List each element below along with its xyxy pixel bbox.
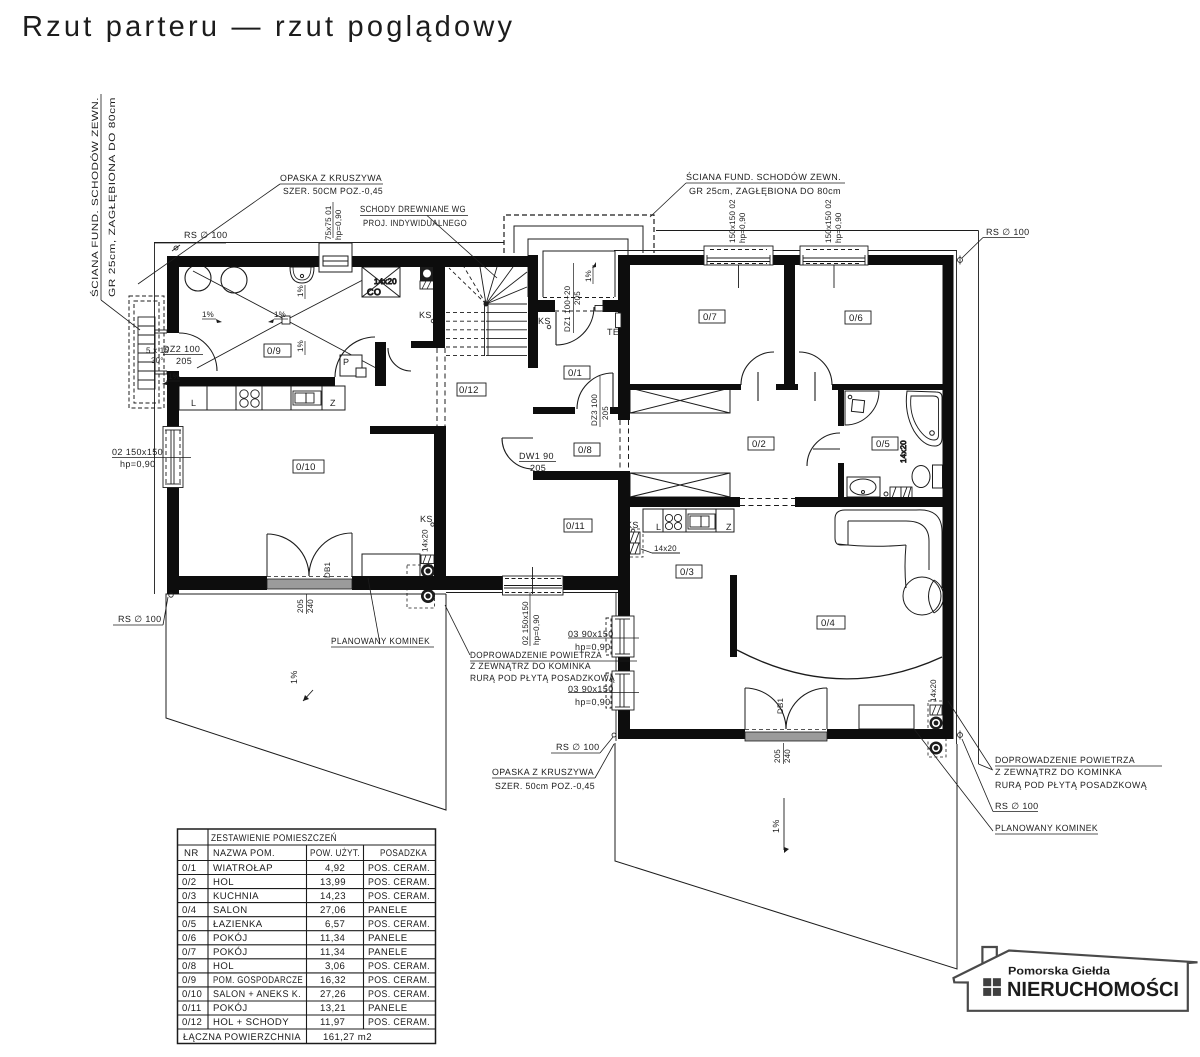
svg-text:13,21: 13,21 <box>320 1003 346 1014</box>
svg-text:SALON + ANEKS K.: SALON + ANEKS K. <box>213 989 301 1000</box>
svg-text:HOL: HOL <box>213 961 234 972</box>
svg-text:0/9: 0/9 <box>182 975 197 986</box>
svg-text:ZESTAWIENIE POMIESZCZEŃ: ZESTAWIENIE POMIESZCZEŃ <box>211 832 337 844</box>
svg-text:POW. UŻYT.: POW. UŻYT. <box>310 847 360 859</box>
svg-text:240: 240 <box>306 599 315 613</box>
svg-text:14x20: 14x20 <box>374 277 397 286</box>
svg-text:DZ3 100: DZ3 100 <box>590 394 599 426</box>
svg-text:hp=0,90: hp=0,90 <box>334 209 343 240</box>
svg-text:240: 240 <box>783 749 792 763</box>
svg-text:0/4: 0/4 <box>821 618 835 629</box>
svg-text:hp=0,90: hp=0,90 <box>575 697 611 707</box>
svg-text:02 150x150: 02 150x150 <box>521 601 530 645</box>
svg-text:GR 25cm, ZAGŁĘBIONA DO 80cm: GR 25cm, ZAGŁĘBIONA DO 80cm <box>107 97 117 297</box>
svg-text:hp=0,90: hp=0,90 <box>834 212 843 243</box>
svg-text:OPASKA Z KRUSZYWA: OPASKA Z KRUSZYWA <box>492 767 594 777</box>
svg-text:205: 205 <box>573 291 582 305</box>
svg-text:205: 205 <box>296 599 305 613</box>
svg-text:P: P <box>343 357 349 367</box>
svg-text:0/3: 0/3 <box>680 567 694 578</box>
svg-text:0/6: 0/6 <box>849 313 863 324</box>
svg-text:HOL: HOL <box>213 877 234 888</box>
svg-text:75x75 01: 75x75 01 <box>324 205 333 240</box>
svg-text:DZ1 100+20: DZ1 100+20 <box>563 285 572 332</box>
svg-text:NIERUCHOMOŚCI: NIERUCHOMOŚCI <box>1007 977 1179 1001</box>
svg-text:0/7: 0/7 <box>703 312 717 323</box>
svg-text:0/1: 0/1 <box>568 368 582 379</box>
svg-text:POS. CERAM.: POS. CERAM. <box>368 877 430 888</box>
svg-text:NAZWA POM.: NAZWA POM. <box>213 848 275 859</box>
svg-text:1%: 1% <box>202 310 214 319</box>
svg-text:KS: KS <box>419 310 432 320</box>
svg-text:Z: Z <box>330 398 336 408</box>
svg-text:0/10: 0/10 <box>182 989 202 1000</box>
svg-text:0/7: 0/7 <box>182 947 197 958</box>
svg-text:0/9: 0/9 <box>267 346 281 357</box>
svg-text:14x20: 14x20 <box>929 679 938 702</box>
svg-text:27,06: 27,06 <box>320 905 346 916</box>
svg-text:0/1: 0/1 <box>182 863 197 874</box>
svg-text:02 150x150: 02 150x150 <box>112 447 163 457</box>
svg-text:hp=0,90: hp=0,90 <box>738 212 747 243</box>
svg-text:0/12: 0/12 <box>182 1017 202 1028</box>
svg-text:150x150 02: 150x150 02 <box>728 199 737 243</box>
svg-text:PANELE: PANELE <box>368 947 408 958</box>
svg-text:0/2: 0/2 <box>752 439 766 450</box>
svg-text:0/11: 0/11 <box>182 1003 202 1014</box>
svg-text:14x20: 14x20 <box>899 440 908 463</box>
svg-text:SALON: SALON <box>213 905 248 916</box>
svg-text:RS ∅ 100: RS ∅ 100 <box>995 801 1039 811</box>
svg-text:hp=0,90: hp=0,90 <box>120 459 156 469</box>
svg-text:ŚCIANA FUND. SCHODÓW ZEWN.: ŚCIANA FUND. SCHODÓW ZEWN. <box>686 171 841 182</box>
svg-text:0/6: 0/6 <box>182 933 197 944</box>
svg-text:POS. CERAM.: POS. CERAM. <box>368 975 430 986</box>
svg-text:PANELE: PANELE <box>368 933 408 944</box>
svg-text:ŚCIANA FUND. SCHODÓW ZEWN.: ŚCIANA FUND. SCHODÓW ZEWN. <box>89 97 100 297</box>
svg-text:DB1: DB1 <box>323 561 332 578</box>
svg-text:03 90x150: 03 90x150 <box>568 629 614 639</box>
svg-text:Z: Z <box>726 522 732 532</box>
svg-text:RS ∅ 100: RS ∅ 100 <box>184 230 228 240</box>
svg-text:RS ∅ 100: RS ∅ 100 <box>556 742 600 752</box>
svg-text:POS. CERAM.: POS. CERAM. <box>368 919 430 930</box>
svg-text:0/5: 0/5 <box>876 439 890 450</box>
svg-text:NR: NR <box>184 848 199 859</box>
svg-text:16,32: 16,32 <box>320 975 346 986</box>
svg-text:KS: KS <box>420 514 433 524</box>
svg-text:13,99: 13,99 <box>320 877 346 888</box>
svg-text:PLANOWANY KOMINEK: PLANOWANY KOMINEK <box>995 823 1098 833</box>
svg-text:Pomorska Giełda: Pomorska Giełda <box>1008 966 1111 978</box>
svg-text:DOPROWADZENIE POWIETRZA: DOPROWADZENIE POWIETRZA <box>470 650 602 660</box>
svg-text:L: L <box>191 398 196 408</box>
svg-text:1%: 1% <box>289 670 299 684</box>
svg-text:150x150 02: 150x150 02 <box>824 199 833 243</box>
svg-text:SZER. 50cm POZ.-0,45: SZER. 50cm POZ.-0,45 <box>495 781 595 791</box>
svg-text:161,27 m2: 161,27 m2 <box>323 1032 372 1043</box>
svg-text:1%: 1% <box>584 270 593 282</box>
svg-text:HOL + SCHODY: HOL + SCHODY <box>213 1017 289 1028</box>
svg-text:TE: TE <box>607 327 619 337</box>
svg-text:0/12: 0/12 <box>459 385 479 396</box>
svg-text:11,97: 11,97 <box>320 1017 345 1028</box>
svg-text:PANELE: PANELE <box>368 1003 408 1014</box>
svg-text:SCHODY DREWNIANE WG: SCHODY DREWNIANE WG <box>360 204 466 214</box>
svg-text:205: 205 <box>601 406 610 420</box>
svg-text:1%: 1% <box>296 285 305 297</box>
svg-text:0/8: 0/8 <box>578 445 592 456</box>
svg-text:0/11: 0/11 <box>566 521 585 532</box>
svg-text:RURĄ POD PŁYTĄ POSADZKOWĄ: RURĄ POD PŁYTĄ POSADZKOWĄ <box>995 780 1148 790</box>
svg-text:OPASKA Z KRUSZYWA: OPASKA Z KRUSZYWA <box>280 173 382 183</box>
svg-text:0/3: 0/3 <box>182 891 197 902</box>
svg-text:Rzut parteru — rzut poglądowy: Rzut parteru — rzut poglądowy <box>22 11 513 43</box>
svg-text:CO: CO <box>367 287 381 297</box>
svg-text:GR 25cm, ZAGŁĘBIONA DO 80cm: GR 25cm, ZAGŁĘBIONA DO 80cm <box>689 186 841 196</box>
svg-text:3,06: 3,06 <box>325 961 345 972</box>
svg-text:POS. CERAM.: POS. CERAM. <box>368 1017 430 1028</box>
svg-text:PROJ. INDYWIDUALNEGO: PROJ. INDYWIDUALNEGO <box>363 218 467 228</box>
svg-text:1%: 1% <box>771 819 781 833</box>
svg-text:RURĄ POD PŁYTĄ POSADZKOWĄ: RURĄ POD PŁYTĄ POSADZKOWĄ <box>470 673 616 683</box>
svg-text:DB1: DB1 <box>776 697 785 714</box>
svg-text:WIATROŁAP: WIATROŁAP <box>213 863 273 874</box>
svg-text:14x20: 14x20 <box>654 544 677 553</box>
svg-text:POS. CERAM.: POS. CERAM. <box>368 891 430 902</box>
svg-text:4,92: 4,92 <box>325 863 345 874</box>
svg-text:PANELE: PANELE <box>368 905 408 916</box>
svg-text:POS. CERAM.: POS. CERAM. <box>368 863 430 874</box>
svg-text:POS. CERAM.: POS. CERAM. <box>368 961 430 972</box>
svg-text:14x20: 14x20 <box>421 529 430 552</box>
svg-text:205: 205 <box>176 356 192 366</box>
svg-text:11,34: 11,34 <box>320 947 346 958</box>
svg-text:30°: 30° <box>151 356 164 365</box>
svg-text:0/8: 0/8 <box>182 961 197 972</box>
svg-text:RS ∅ 100: RS ∅ 100 <box>986 227 1030 237</box>
svg-text:POKÓJ: POKÓJ <box>213 946 248 958</box>
svg-text:Z ZEWNĄTRZ DO KOMINKA: Z ZEWNĄTRZ DO KOMINKA <box>470 661 591 671</box>
svg-text:POKÓJ: POKÓJ <box>213 1002 248 1014</box>
svg-text:0/4: 0/4 <box>182 905 197 916</box>
svg-text:Z ZEWNĄTRZ DO KOMINKA: Z ZEWNĄTRZ DO KOMINKA <box>995 767 1122 777</box>
svg-text:1%: 1% <box>296 340 305 352</box>
svg-text:DOPROWADZENIE POWIETRZA: DOPROWADZENIE POWIETRZA <box>995 755 1135 765</box>
svg-text:0/10: 0/10 <box>296 462 316 473</box>
svg-text:ŁĄCZNA POWIERZCHNIA: ŁĄCZNA POWIERZCHNIA <box>183 1032 301 1043</box>
svg-text:PLANOWANY KOMINEK: PLANOWANY KOMINEK <box>331 636 430 646</box>
svg-text:6,57: 6,57 <box>325 919 345 930</box>
svg-text:hp=0,90: hp=0,90 <box>532 614 541 645</box>
svg-text:DW1 90: DW1 90 <box>519 451 554 461</box>
svg-text:POM. GOSPODARCZE: POM. GOSPODARCZE <box>213 975 303 986</box>
svg-text:KS: KS <box>538 316 551 326</box>
svg-text:RS ∅ 100: RS ∅ 100 <box>118 614 162 624</box>
svg-text:0/2: 0/2 <box>182 877 197 888</box>
svg-text:205: 205 <box>530 463 546 473</box>
svg-text:0/5: 0/5 <box>182 919 197 930</box>
svg-text:14,23: 14,23 <box>320 891 346 902</box>
svg-text:205: 205 <box>773 749 782 763</box>
svg-text:ŁAZIENKA: ŁAZIENKA <box>213 919 263 930</box>
svg-text:POSADZKA: POSADZKA <box>380 848 427 859</box>
svg-text:1%: 1% <box>274 310 286 319</box>
svg-text:5 x 15: 5 x 15 <box>146 346 169 355</box>
svg-text:POS. CERAM.: POS. CERAM. <box>368 989 430 1000</box>
svg-text:1%: 1% <box>168 372 180 381</box>
svg-text:L: L <box>656 522 661 532</box>
svg-text:27,26: 27,26 <box>320 989 346 1000</box>
svg-text:11,34: 11,34 <box>320 933 346 944</box>
svg-text:POKÓJ: POKÓJ <box>213 932 248 944</box>
svg-text:KUCHNIA: KUCHNIA <box>213 891 259 902</box>
svg-text:SZER. 50CM POZ.-0,45: SZER. 50CM POZ.-0,45 <box>283 186 383 196</box>
